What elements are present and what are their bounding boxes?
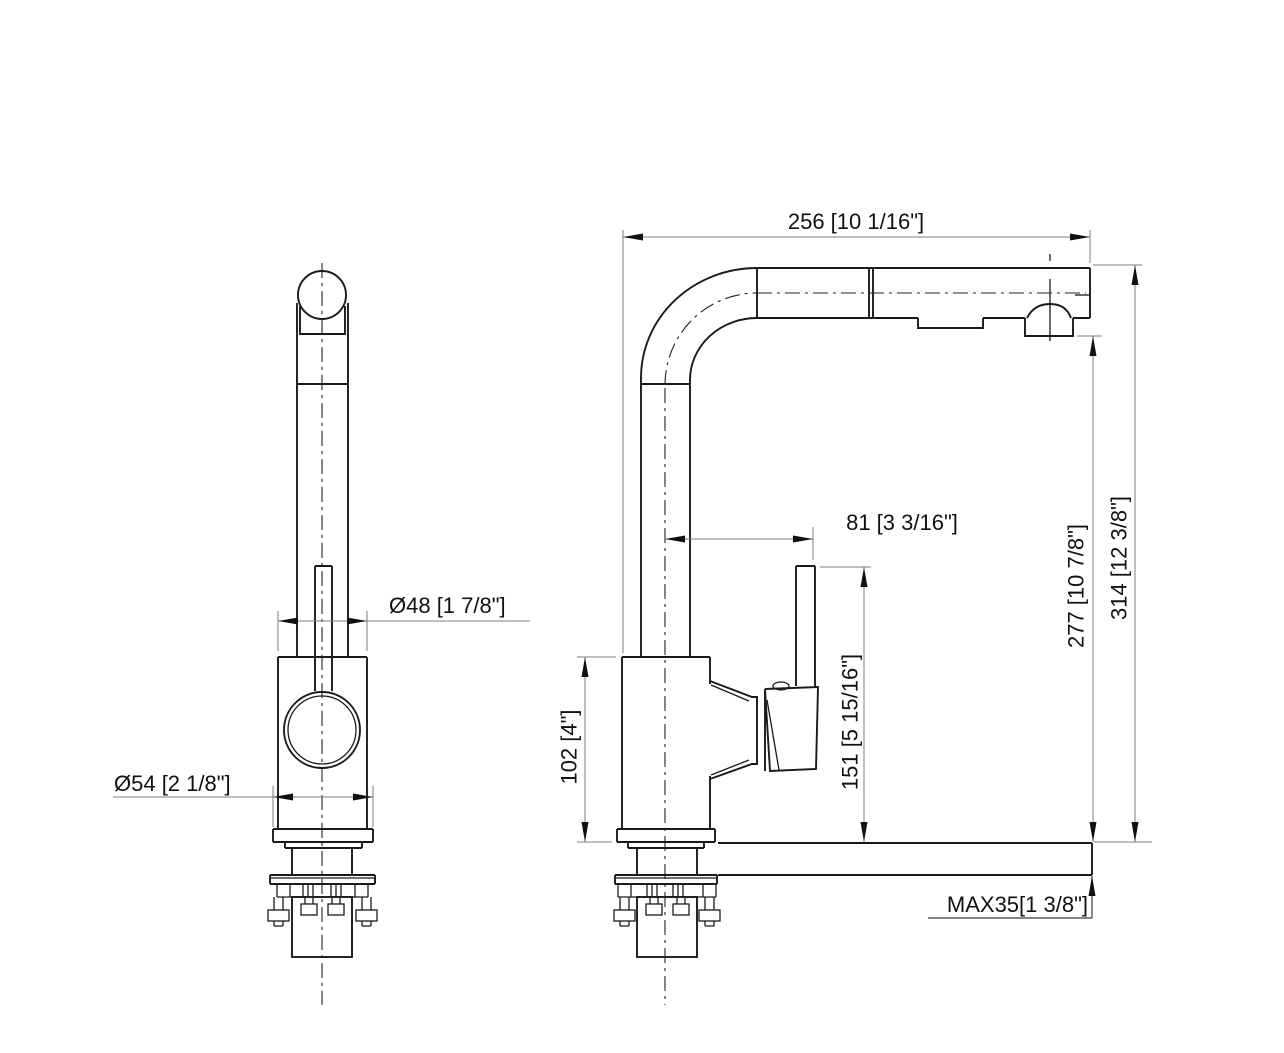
dim-outlet-height-label: 277 [10 7/8"]	[1064, 524, 1089, 648]
dim-handle-height-label: 151 [5 15/16"]	[838, 654, 863, 790]
dim-deck-thickness-label: MAX35[1 3/8"]	[947, 892, 1088, 917]
drawing-page: 256 [10 1/16"] Ø48 [1 7/8"] Ø54 [2 1/8"]…	[0, 0, 1284, 1053]
dim-body-diameter-label: Ø48 [1 7/8"]	[389, 593, 506, 618]
dim-spout-reach-label: 256 [10 1/16"]	[788, 209, 924, 234]
dim-base-diameter-label: Ø54 [2 1/8"]	[114, 771, 231, 796]
dim-handle-offset-label: 81 [3 3/16"]	[846, 510, 958, 535]
dim-body-height-label: 102 [4"]	[557, 709, 582, 784]
dim-overall-height-label: 314 [12 3/8"]	[1107, 496, 1132, 620]
